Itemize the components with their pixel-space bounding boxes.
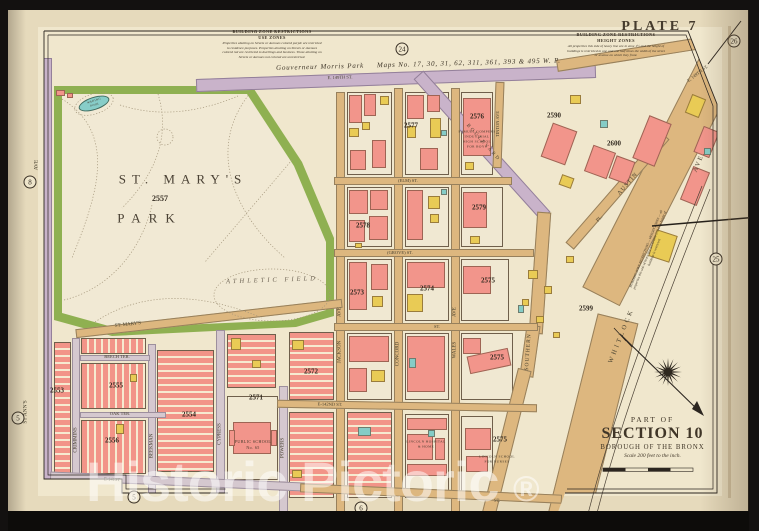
label-industrial: INDUSTRIAL bbox=[465, 135, 490, 139]
use-zones-title: BUILDING ZONE RESTRICTIONS bbox=[222, 29, 322, 35]
label-2574: 2574 bbox=[420, 286, 434, 293]
label-2577: 2577 bbox=[404, 123, 418, 130]
label-st: ST. bbox=[434, 325, 440, 330]
label-pl: PL. bbox=[596, 215, 604, 224]
label-park: PARK bbox=[117, 212, 182, 225]
photo-edge-right bbox=[749, 0, 759, 531]
photo-edge-top bbox=[0, 0, 759, 10]
label-ave: AVE bbox=[453, 307, 458, 317]
label-ave: AVE bbox=[338, 307, 343, 317]
label-2575: 2575 bbox=[481, 278, 495, 285]
label-lincoln-hospital: LINCOLN HOSPITAL bbox=[406, 440, 445, 444]
label-2578: 2578 bbox=[356, 223, 370, 230]
label-for-boys: FOR BOYS bbox=[467, 145, 487, 149]
label-samuel-gompers: SAMUEL GOMPERS bbox=[458, 130, 495, 134]
label-public-school: PUBLIC SCHOOL bbox=[235, 440, 271, 444]
label-wales: WALES bbox=[453, 342, 458, 359]
label-grove-st: (GROVE) ST. bbox=[387, 251, 413, 256]
label-elm-st: (ELM) ST. bbox=[398, 179, 418, 184]
label-2554: 2554 bbox=[182, 412, 196, 419]
label-2600: 2600 bbox=[607, 141, 621, 148]
page-curl-shadow bbox=[700, 10, 749, 512]
label-athletic-field: ATHLETIC FIELD bbox=[226, 276, 318, 286]
label-2572: 2572 bbox=[304, 369, 318, 376]
label-2556: 2556 bbox=[105, 438, 119, 445]
label-2579: 2579 bbox=[472, 205, 486, 212]
photo-edge-bottom bbox=[0, 511, 759, 531]
page-crease bbox=[728, 26, 731, 498]
page-gutter-shadow bbox=[8, 10, 26, 512]
label-2571: 2571 bbox=[249, 395, 263, 402]
label-tinton-ave: TINTON AVE bbox=[496, 111, 501, 137]
registered-mark: ® bbox=[513, 468, 539, 509]
label-2553: 2553 bbox=[50, 388, 64, 395]
label-high-school: HIGH SCHOOL bbox=[463, 140, 491, 144]
use-zones-subtitle: USE ZONES bbox=[222, 35, 322, 41]
watermark-text: Historic Pictoric bbox=[86, 450, 498, 513]
height-zones-title: BUILDING ZONE RESTRICTIONS bbox=[566, 32, 666, 38]
label-st-mary-s: ST. MARY'S bbox=[115, 321, 142, 329]
label-beech-ter: BEECH TER. bbox=[104, 355, 129, 360]
label-austin: AUSTIN bbox=[617, 171, 640, 196]
label-2555: 2555 bbox=[109, 383, 123, 390]
label-pool: POOL bbox=[90, 102, 100, 108]
label-st-mary-s: ST. MARY'S bbox=[119, 173, 248, 186]
use-zones-note: BUILDING ZONE RESTRICTIONS USE ZONES Pro… bbox=[222, 29, 322, 59]
label-concord: CONCORD bbox=[396, 342, 401, 366]
label-2576: 2576 bbox=[470, 114, 484, 121]
label-whitlock: WHITLOCK bbox=[608, 308, 636, 365]
label-ave: AVE bbox=[34, 160, 40, 171]
label-southern: SOUTHERN bbox=[525, 333, 533, 371]
label-e-149th-st: E. 149TH ST. bbox=[327, 75, 352, 80]
label-2557: 2557 bbox=[152, 195, 168, 203]
use-zones-body: Properties abutting on Streets or Avenue… bbox=[222, 41, 322, 59]
label-2599: 2599 bbox=[579, 306, 593, 313]
label-jackson: JACKSON bbox=[338, 341, 343, 364]
height-zones-body: All properties this side of heavy line a… bbox=[566, 44, 666, 58]
atlas-photo: AVEST ANN'SCRIMMINSBEEKMANCYPRESSPOWERSJ… bbox=[0, 0, 759, 531]
label-2590: 2590 bbox=[547, 113, 561, 120]
photo-edge-left bbox=[0, 0, 8, 531]
label-e-142nd-st: E-142ND ST. bbox=[318, 403, 343, 408]
label-2573: 2573 bbox=[350, 290, 364, 297]
label-oak-ter: OAK TER. bbox=[110, 412, 130, 417]
label-2575: 2575 bbox=[493, 437, 507, 444]
label-crimmins: CRIMMINS bbox=[74, 427, 79, 452]
height-zones-subtitle: HEIGHT ZONES bbox=[566, 38, 666, 44]
watermark: Historic Pictoric ® bbox=[86, 449, 539, 514]
height-zones-note: BUILDING ZONE RESTRICTIONS HEIGHT ZONES … bbox=[566, 32, 666, 58]
label-2575: 2575 bbox=[490, 355, 504, 362]
plate-ref-24: 24 bbox=[396, 43, 409, 56]
label-cypress: CYPRESS bbox=[218, 423, 223, 445]
